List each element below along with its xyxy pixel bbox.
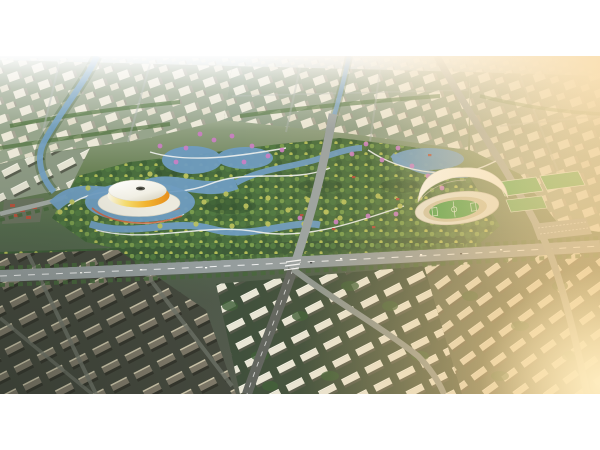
- lighting-overlays: [0, 56, 600, 394]
- aerial-render-photo: Bird's-eye masterplan rendering: a centr…: [0, 56, 600, 394]
- screenshot-canvas: Bird's-eye masterplan rendering: a centr…: [0, 0, 600, 450]
- shadow-vignette: [0, 56, 600, 394]
- letterbox-bottom: [0, 394, 600, 450]
- letterbox-top: [0, 0, 600, 56]
